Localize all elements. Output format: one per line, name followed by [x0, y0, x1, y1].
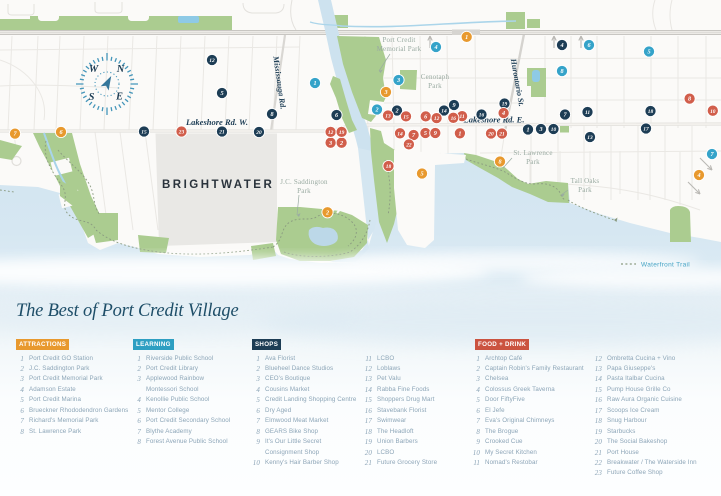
- svg-text:5: 5: [424, 130, 427, 137]
- svg-text:21: 21: [498, 132, 505, 138]
- svg-text:4: 4: [433, 44, 437, 51]
- svg-text:12: 12: [328, 130, 334, 136]
- svg-text:Park: Park: [428, 82, 442, 90]
- svg-text:Park: Park: [297, 187, 311, 195]
- svg-text:Memorial Park: Memorial Park: [377, 45, 422, 53]
- svg-text:2: 2: [325, 209, 329, 216]
- svg-text:N: N: [116, 64, 125, 75]
- svg-text:16: 16: [451, 116, 457, 122]
- svg-text:21: 21: [218, 130, 225, 136]
- svg-text:16: 16: [479, 113, 485, 119]
- svg-text:4: 4: [559, 42, 563, 49]
- svg-text:13: 13: [385, 114, 391, 120]
- svg-text:8: 8: [498, 159, 501, 166]
- svg-text:W: W: [89, 64, 99, 75]
- svg-text:BRIGHTWATER: BRIGHTWATER: [162, 179, 274, 191]
- svg-text:1: 1: [313, 80, 316, 87]
- svg-text:Park: Park: [578, 186, 592, 194]
- svg-text:14: 14: [441, 109, 447, 115]
- svg-text:Lakeshore Rd. W.: Lakeshore Rd. W.: [185, 117, 248, 127]
- svg-text:14: 14: [397, 131, 403, 137]
- svg-text:9: 9: [434, 130, 437, 137]
- svg-text:3: 3: [396, 77, 400, 84]
- svg-text:17: 17: [643, 127, 649, 133]
- svg-text:Park: Park: [526, 158, 540, 166]
- svg-text:Cenotaph: Cenotaph: [421, 73, 450, 81]
- svg-text:8: 8: [560, 68, 563, 75]
- svg-text:Tall Oaks: Tall Oaks: [571, 177, 600, 185]
- svg-text:19: 19: [502, 102, 508, 108]
- svg-text:2: 2: [394, 108, 398, 115]
- svg-text:8: 8: [688, 96, 691, 103]
- svg-text:4: 4: [696, 172, 700, 179]
- svg-text:8: 8: [270, 111, 273, 118]
- svg-text:12: 12: [209, 58, 215, 64]
- svg-text:3: 3: [538, 126, 542, 133]
- svg-text:18: 18: [386, 164, 392, 170]
- svg-text:18: 18: [648, 109, 654, 115]
- svg-text:9: 9: [452, 102, 455, 109]
- svg-text:19: 19: [339, 130, 345, 136]
- svg-text:15: 15: [403, 115, 409, 121]
- svg-text:2: 2: [339, 140, 343, 147]
- svg-text:1: 1: [458, 130, 461, 137]
- svg-text:10: 10: [710, 109, 716, 115]
- svg-text:5: 5: [420, 171, 423, 178]
- svg-text:1: 1: [526, 127, 529, 134]
- svg-text:22: 22: [405, 143, 412, 149]
- svg-text:2: 2: [374, 107, 378, 114]
- svg-text:15: 15: [141, 130, 147, 136]
- svg-text:5: 5: [647, 49, 650, 56]
- svg-text:13: 13: [587, 135, 593, 141]
- svg-text:3: 3: [383, 89, 387, 96]
- svg-text:Lakeshore Rd. E.: Lakeshore Rd. E.: [463, 115, 525, 125]
- svg-text:St. Lawrence: St. Lawrence: [513, 149, 552, 157]
- svg-text:23: 23: [178, 130, 185, 136]
- svg-text:11: 11: [585, 110, 590, 116]
- svg-text:5: 5: [220, 90, 223, 97]
- svg-text:11: 11: [460, 114, 465, 120]
- svg-text:4: 4: [501, 110, 505, 117]
- svg-text:E: E: [115, 92, 123, 103]
- svg-text:Port Credit: Port Credit: [382, 36, 415, 44]
- svg-text:20: 20: [487, 132, 494, 138]
- svg-text:3: 3: [328, 140, 332, 147]
- svg-text:Waterfront Trail: Waterfront Trail: [641, 262, 690, 269]
- svg-text:S: S: [89, 92, 95, 103]
- svg-text:J.C. Saddington: J.C. Saddington: [280, 178, 328, 186]
- svg-text:10: 10: [551, 127, 557, 133]
- svg-text:20: 20: [255, 130, 262, 136]
- svg-text:12: 12: [434, 116, 440, 122]
- svg-text:1: 1: [465, 34, 468, 41]
